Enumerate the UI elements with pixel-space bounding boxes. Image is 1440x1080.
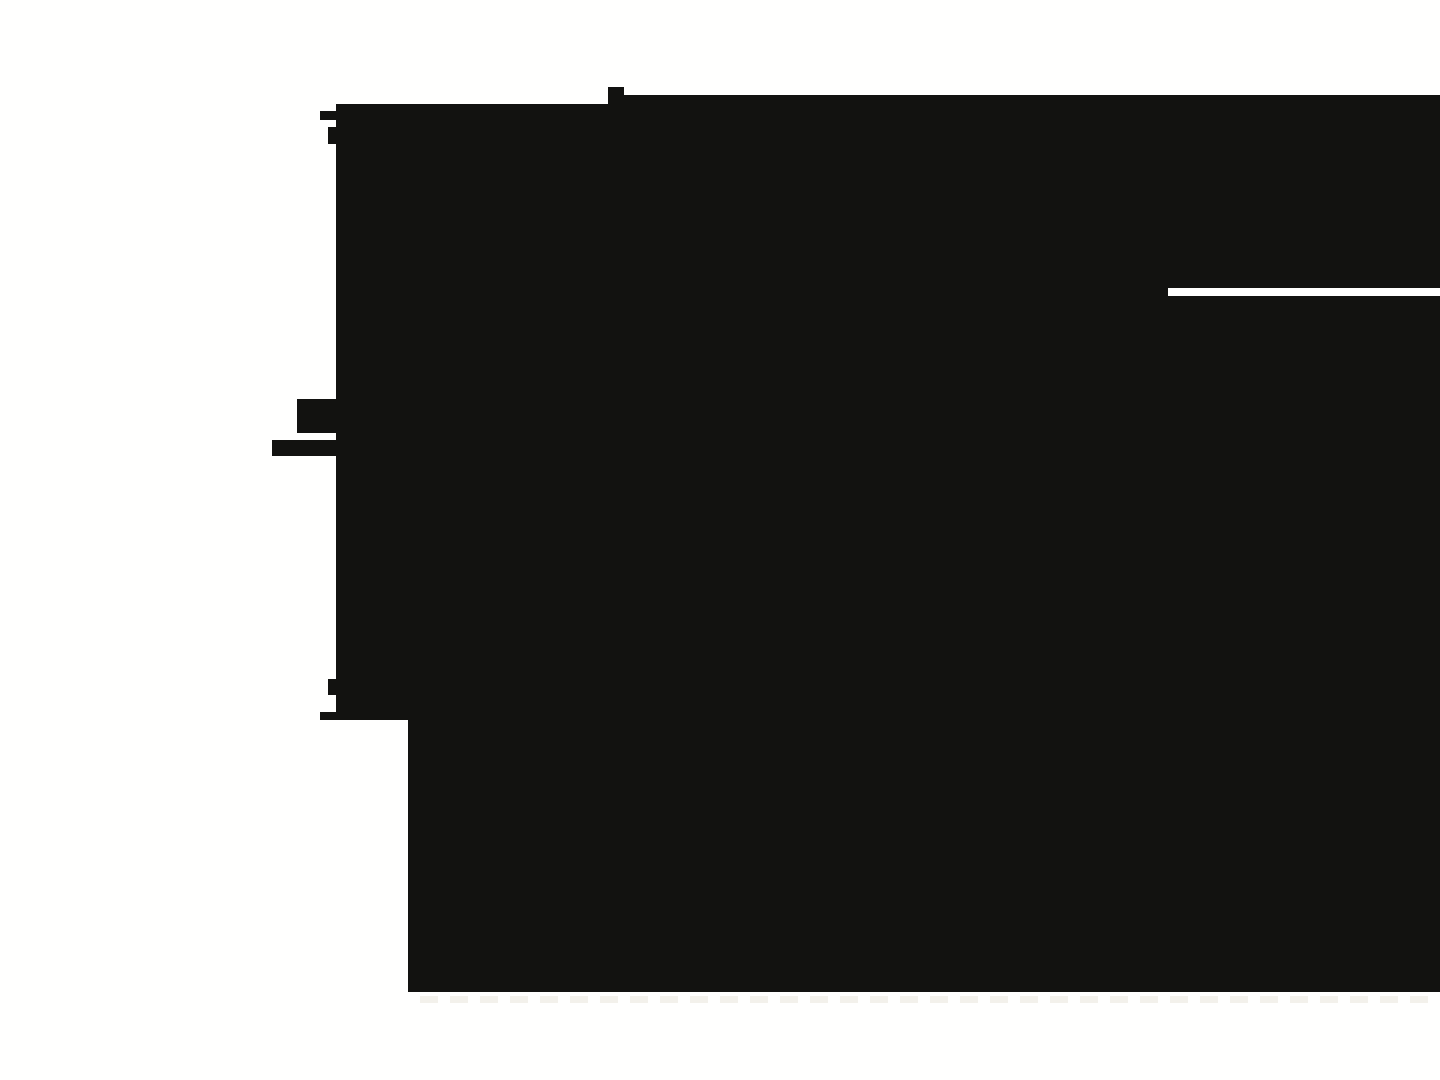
ghost-text-mark [1410, 996, 1428, 1003]
ghost-text-mark [630, 996, 648, 1003]
ghost-text-mark [1290, 996, 1308, 1003]
ghost-text-mark [690, 996, 708, 1003]
ghost-text-mark [1020, 996, 1038, 1003]
ghost-text-mark [570, 996, 588, 1003]
ghost-text-mark [1320, 996, 1338, 1003]
ghost-text-mark [1200, 996, 1218, 1003]
ghost-text-mark [870, 996, 888, 1003]
ghost-text-mark [780, 996, 798, 1003]
ghost-text-mark [1230, 996, 1248, 1003]
ghost-text-mark [1260, 996, 1278, 1003]
ghost-text-mark [1350, 996, 1368, 1003]
screenshot-canvas [0, 0, 1440, 1080]
ghost-text-mark [450, 996, 468, 1003]
ghost-text-mark [540, 996, 558, 1003]
ghost-text-mark [420, 996, 438, 1003]
ghost-text-mark [660, 996, 678, 1003]
ghost-text-mark [900, 996, 918, 1003]
ghost-text-mark [1110, 996, 1128, 1003]
ghost-text-mark [750, 996, 768, 1003]
ghost-text-mark [840, 996, 858, 1003]
ghost-text-mark [930, 996, 948, 1003]
ghost-text-mark [810, 996, 828, 1003]
ghost-text-mark [510, 996, 528, 1003]
ghost-text-mark [1050, 996, 1068, 1003]
scene-svg [0, 0, 1440, 1080]
ghost-text-mark [720, 996, 738, 1003]
ghost-text-mark [600, 996, 618, 1003]
ghost-text-mark [1080, 996, 1098, 1003]
ghost-text-mark [1170, 996, 1188, 1003]
ghost-text-mark [480, 996, 498, 1003]
ghost-text-mark [1140, 996, 1158, 1003]
ghost-text-mark [960, 996, 978, 1003]
ghost-text-mark [1380, 996, 1398, 1003]
black-silhouette-region [272, 87, 1440, 992]
ghost-text-mark [990, 996, 1008, 1003]
